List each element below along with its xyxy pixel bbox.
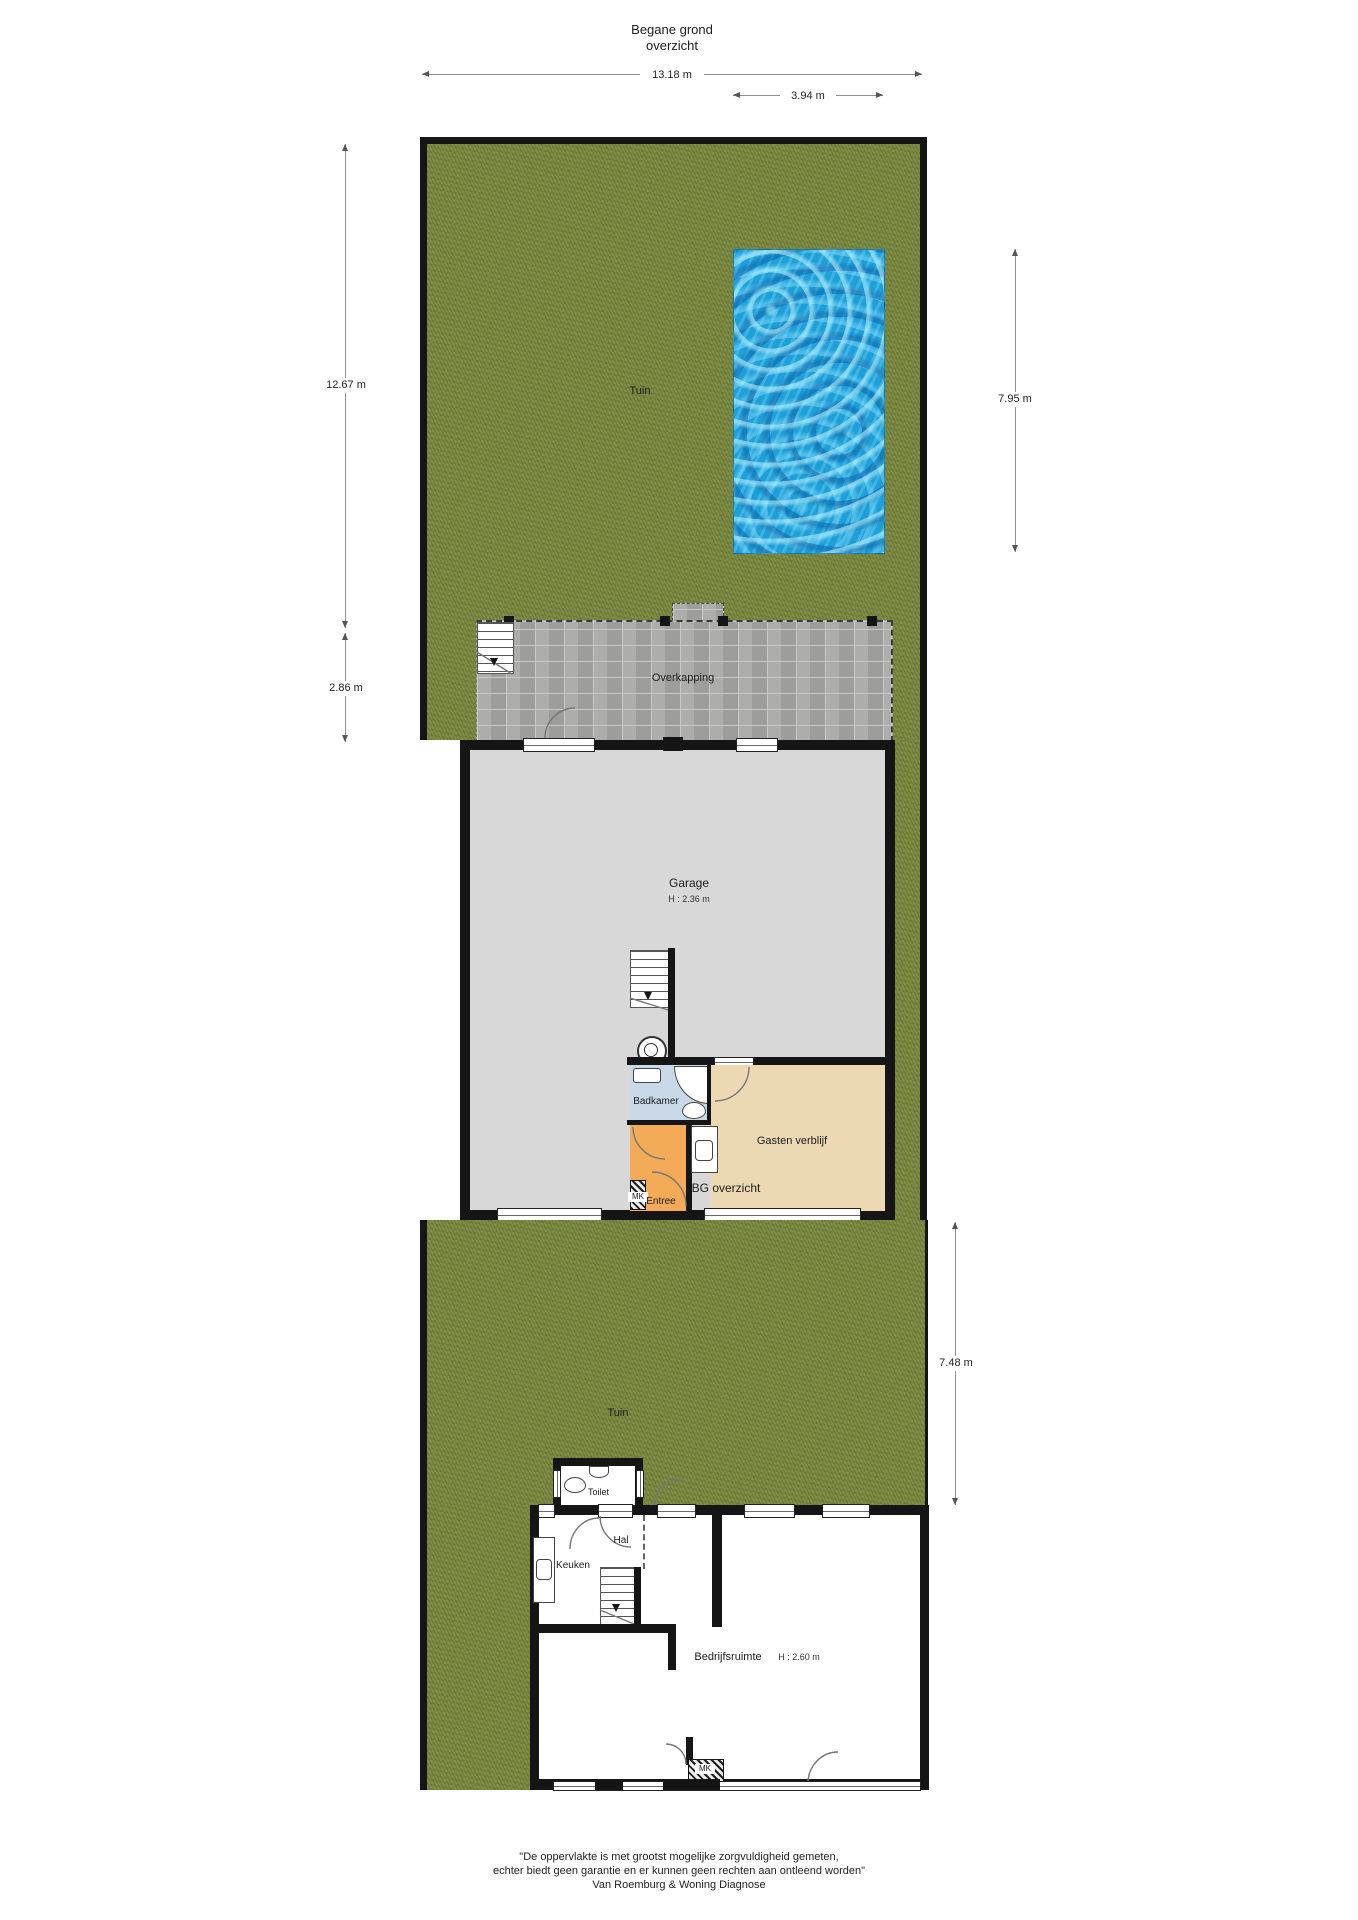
dimension-plot-width-label: 13.18 m bbox=[640, 68, 704, 83]
page-subtitle: overzicht bbox=[472, 38, 872, 54]
stairs-side-wall bbox=[668, 948, 675, 1062]
hal-label: Hal bbox=[596, 1535, 646, 1547]
window bbox=[744, 1504, 795, 1518]
dimension-garden-bottom-height-label: 7.48 m bbox=[926, 1356, 986, 1371]
garden-bottom-label: Tuin bbox=[578, 1406, 658, 1420]
post-icon bbox=[867, 616, 877, 626]
toilet-label: Toilet bbox=[571, 1487, 626, 1498]
door-arc-backdoor bbox=[654, 1479, 681, 1506]
wall-segment bbox=[595, 1779, 623, 1790]
floorplan-canvas: Begane grond overzicht 13.18 m 3.94 m 12… bbox=[0, 0, 1358, 1920]
badkamer-label: Badkamer bbox=[616, 1096, 696, 1108]
garage-window-top-left bbox=[523, 738, 595, 752]
toilet-sink-icon bbox=[589, 1466, 609, 1478]
stairs-side-wall bbox=[634, 1567, 641, 1627]
window bbox=[538, 1504, 555, 1518]
dimension-plot-width: 13.18 m bbox=[422, 68, 922, 82]
dimension-overkapping-height-label: 2.86 m bbox=[315, 681, 377, 696]
opening-dashed-line bbox=[643, 1515, 647, 1569]
door-arc-mk bbox=[666, 1744, 686, 1764]
garden-top-label: Tuin bbox=[600, 384, 680, 398]
garage-label: Garage bbox=[629, 876, 749, 891]
wall-pillar bbox=[663, 737, 683, 751]
footer-line-3: Van Roemburg & Woning Diagnose bbox=[379, 1878, 979, 1892]
bedrijfsruimte-height-label: H : 2.60 m bbox=[763, 1652, 835, 1663]
bg-overzicht-label: BG overzicht bbox=[666, 1181, 786, 1196]
dimension-pool-height-label: 7.95 m bbox=[985, 392, 1045, 407]
footer-line-2: echter biedt geen garantie en er kunnen … bbox=[379, 1864, 979, 1878]
meterkast-bedrijfsruimte-label: MK bbox=[695, 1764, 715, 1774]
toilet-window-right bbox=[636, 1470, 644, 1498]
stairs-down-arrow-icon bbox=[490, 658, 498, 666]
post-icon bbox=[660, 616, 670, 626]
door-arc-gasten bbox=[715, 1067, 749, 1101]
toilet-window-left bbox=[553, 1470, 561, 1498]
swimming-pool bbox=[733, 249, 885, 554]
bathroom-sink-icon bbox=[633, 1068, 661, 1083]
garden-bottom-left-strip bbox=[420, 1505, 533, 1790]
window bbox=[822, 1504, 870, 1518]
stairs-down-arrow-icon bbox=[644, 992, 652, 1000]
page-title: Begane grond bbox=[472, 22, 872, 38]
interior-wall bbox=[530, 1624, 676, 1633]
washing-machine-drum-icon bbox=[644, 1043, 658, 1057]
wall-segment bbox=[663, 1779, 720, 1790]
door-arc-entree-top bbox=[633, 1127, 665, 1159]
footer-disclaimer: "De oppervlakte is met grootst mogelijke… bbox=[379, 1850, 979, 1892]
garden-bottom bbox=[420, 1220, 928, 1505]
overkapping-label: Overkapping bbox=[613, 671, 753, 685]
lower-house-interior bbox=[539, 1515, 920, 1779]
garage-height-label: H : 2.36 m bbox=[629, 894, 749, 905]
lower-house-wall-right bbox=[920, 1505, 929, 1790]
sink-icon bbox=[695, 1140, 713, 1161]
garden-side-strip bbox=[895, 740, 927, 1220]
dimension-pool-width: 3.94 m bbox=[733, 89, 883, 103]
dimension-garden-top-height-label: 12.67 m bbox=[315, 378, 377, 393]
door-arc-bedrijfsruimte bbox=[808, 1752, 838, 1783]
garage-window-top-right bbox=[736, 738, 778, 752]
interior-wall bbox=[712, 1515, 722, 1627]
gasten-verblijf-label: Gasten verblijf bbox=[727, 1134, 857, 1148]
door-arc-keuken bbox=[570, 1518, 599, 1549]
door-arc-garage-terrace bbox=[545, 708, 575, 738]
dimension-pool-width-label: 3.94 m bbox=[780, 89, 836, 104]
entree-label: Entree bbox=[638, 1196, 684, 1208]
footer-line-1: "De oppervlakte is met grootst mogelijke… bbox=[379, 1850, 979, 1864]
interior-wall bbox=[627, 1057, 893, 1065]
stairs-down-arrow-icon bbox=[612, 1604, 620, 1612]
post-icon bbox=[718, 616, 728, 626]
window bbox=[657, 1504, 696, 1518]
